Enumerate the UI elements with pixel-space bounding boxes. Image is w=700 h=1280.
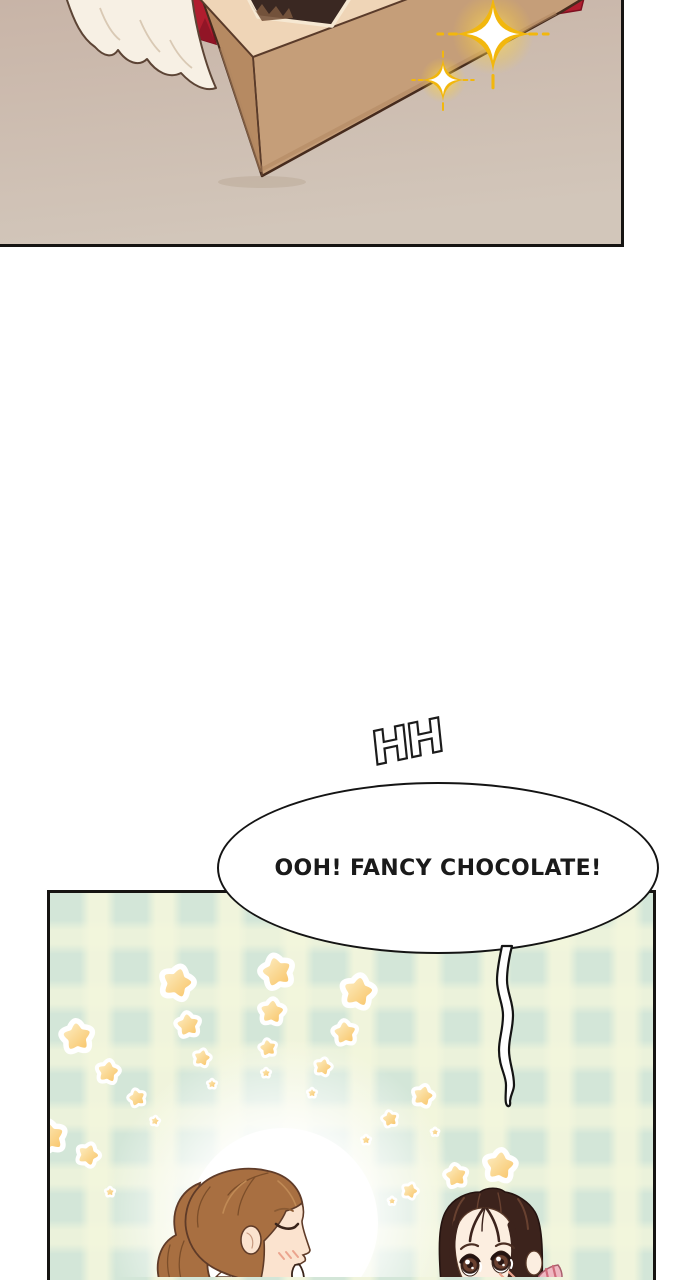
star-icon <box>361 1135 371 1144</box>
star-icon <box>413 1085 434 1107</box>
bubble-tail <box>480 935 530 1120</box>
comic-page: HH <box>0 0 700 1280</box>
star-icon <box>260 955 292 988</box>
chocolate-box-scene <box>0 0 621 244</box>
reaction-scene <box>50 893 653 1277</box>
star-icon <box>77 1143 100 1166</box>
star-icon <box>50 1121 65 1152</box>
star-icon <box>332 1020 357 1044</box>
star-icon <box>128 1089 145 1107</box>
sfx-text: HH <box>350 701 465 794</box>
speech-bubble-text: OOH! FANCY CHOCOLATE! <box>274 856 601 881</box>
star-icon <box>261 1068 271 1077</box>
girl-dark-hair <box>439 1188 562 1277</box>
sfx-label: HH <box>369 708 444 777</box>
star-icon <box>194 1049 211 1067</box>
star-icon <box>388 1197 396 1205</box>
ear <box>241 1226 261 1254</box>
star-icon <box>61 1021 92 1052</box>
star-icon <box>162 966 194 999</box>
star-icon <box>105 1187 115 1196</box>
speech-bubble: OOH! FANCY CHOCOLATE! <box>217 782 659 954</box>
box-shadow <box>218 176 306 188</box>
star-icon <box>485 1150 516 1181</box>
star-icon <box>150 1116 159 1126</box>
star-icon <box>342 975 374 1008</box>
star-icon <box>175 1012 199 1036</box>
star-icon <box>207 1079 217 1088</box>
panel-reaction <box>47 890 656 1280</box>
star-icon <box>307 1088 317 1097</box>
panel-chocolate-box <box>0 0 624 247</box>
ear <box>526 1251 542 1275</box>
star-icon <box>431 1128 439 1136</box>
star-icon <box>259 999 285 1024</box>
star-icon <box>97 1060 120 1083</box>
